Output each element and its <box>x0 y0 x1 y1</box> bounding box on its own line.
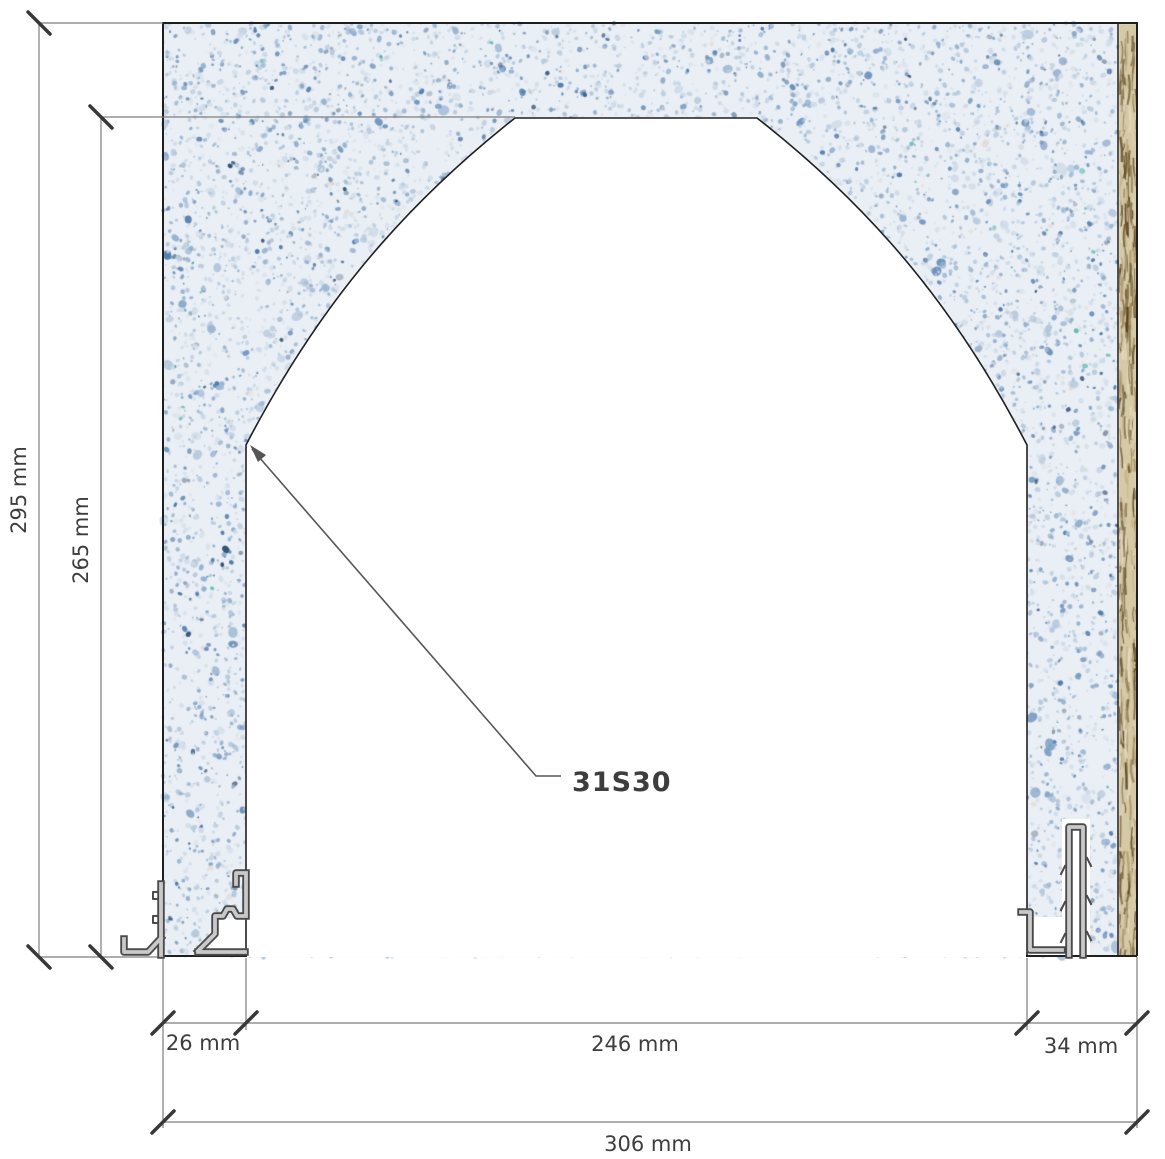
dim-opening-width-text: 246 mm <box>591 1032 679 1056</box>
arch-opening-fill <box>246 118 1027 957</box>
dim-total-width-text: 306 mm <box>604 1132 692 1156</box>
dim-opening-height-text: 265 mm <box>69 496 93 584</box>
dim-left-jamb-text: 26 mm <box>166 1031 240 1055</box>
dim-total-height-text: 295 mm <box>7 446 31 534</box>
cad-drawing-stage: 295 mm 265 mm 26 mm 246 mm 34 mm 306 mm … <box>0 0 1165 1159</box>
profile-label-text: 31S30 <box>572 767 672 798</box>
drawing-overlay: 295 mm 265 mm 26 mm 246 mm 34 mm 306 mm … <box>0 0 1165 1159</box>
dim-right-jamb-text: 34 mm <box>1044 1034 1118 1058</box>
